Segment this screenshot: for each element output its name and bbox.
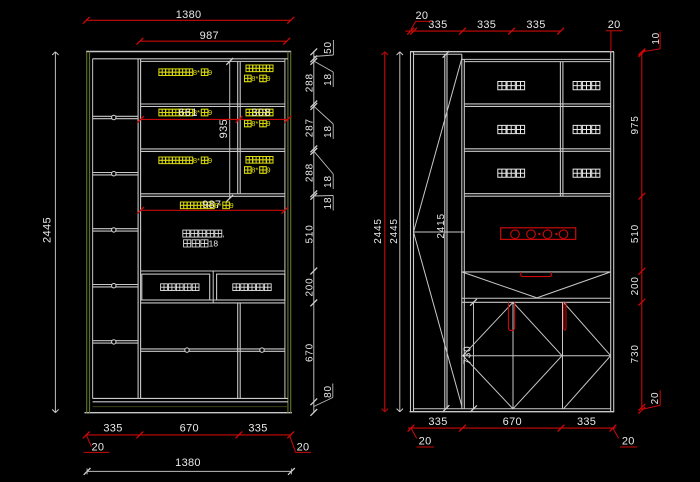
svg-text:987: 987 — [200, 30, 219, 42]
svg-text:18: 18 — [323, 73, 334, 86]
svg-text:8*: 8* — [193, 156, 200, 165]
svg-text:661: 661 — [178, 107, 197, 119]
svg-text:287: 287 — [304, 118, 315, 137]
svg-text:9: 9 — [208, 108, 212, 117]
svg-text:9: 9 — [208, 156, 212, 165]
svg-text:670: 670 — [180, 422, 199, 434]
svg-text:9: 9 — [208, 68, 212, 77]
svg-text:9: 9 — [229, 201, 233, 210]
svg-text:730: 730 — [463, 346, 474, 365]
svg-text:,: , — [222, 230, 224, 239]
svg-text:1380: 1380 — [175, 457, 201, 469]
svg-text:18: 18 — [209, 239, 219, 249]
svg-text:288: 288 — [304, 163, 315, 182]
svg-text:2445: 2445 — [389, 218, 400, 243]
svg-text:20: 20 — [622, 436, 635, 448]
svg-text:975: 975 — [630, 115, 641, 134]
svg-text:288: 288 — [304, 73, 315, 92]
svg-text:935: 935 — [218, 119, 230, 139]
svg-text:510: 510 — [630, 224, 641, 243]
svg-text:50: 50 — [323, 41, 334, 54]
svg-text:335: 335 — [428, 416, 447, 428]
svg-text:200: 200 — [630, 276, 641, 295]
svg-text:335: 335 — [103, 422, 122, 434]
svg-text:20: 20 — [608, 19, 621, 31]
svg-text:20: 20 — [297, 442, 310, 454]
svg-text:335: 335 — [248, 422, 267, 434]
svg-text:2445: 2445 — [42, 217, 54, 243]
svg-text:9: 9 — [266, 166, 270, 175]
svg-text:308: 308 — [251, 107, 270, 119]
svg-text:335: 335 — [526, 19, 545, 31]
svg-text:335: 335 — [577, 416, 596, 428]
svg-text:1380: 1380 — [176, 9, 202, 21]
svg-text:18: 18 — [323, 125, 334, 138]
svg-text:670: 670 — [304, 343, 315, 362]
svg-text:2415: 2415 — [436, 213, 447, 238]
svg-text:730: 730 — [630, 344, 641, 363]
svg-text:20: 20 — [650, 392, 661, 405]
svg-text:18: 18 — [323, 175, 334, 188]
svg-text:9: 9 — [266, 74, 270, 83]
svg-text:20: 20 — [91, 442, 104, 454]
svg-text:670: 670 — [503, 416, 522, 428]
svg-text:20: 20 — [415, 10, 428, 22]
svg-text:8*: 8* — [251, 119, 258, 128]
svg-text:510: 510 — [304, 224, 315, 243]
svg-text:8*: 8* — [251, 74, 258, 83]
svg-text:335: 335 — [477, 19, 496, 31]
svg-text:8*: 8* — [251, 166, 258, 175]
svg-text:2445: 2445 — [373, 218, 384, 243]
svg-text:18: 18 — [323, 197, 334, 210]
svg-text:987: 987 — [202, 199, 221, 211]
svg-text:8*: 8* — [193, 68, 200, 77]
svg-text:80: 80 — [323, 385, 334, 398]
svg-text:20: 20 — [419, 436, 432, 448]
svg-text:9: 9 — [266, 119, 270, 128]
svg-text:200: 200 — [304, 277, 315, 296]
